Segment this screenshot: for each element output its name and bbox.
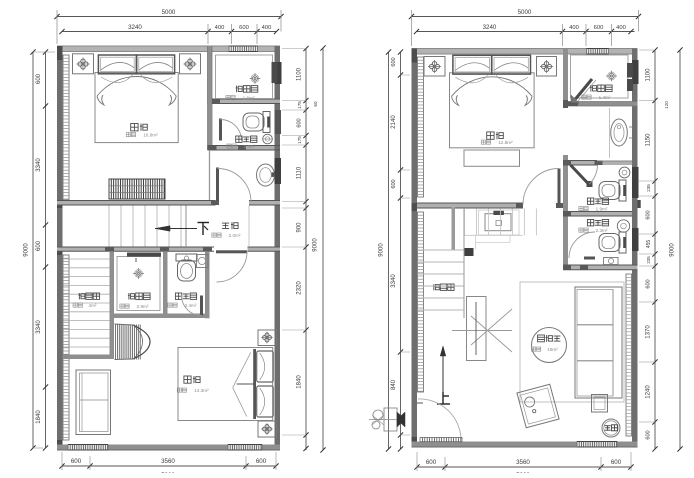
svg-text:1100: 1100	[297, 67, 303, 81]
svg-text:9000: 9000	[379, 243, 385, 257]
svg-text:1100: 1100	[646, 68, 652, 82]
svg-text:400: 400	[215, 25, 225, 31]
svg-text:4m²: 4m²	[89, 303, 97, 308]
svg-text:2.9m²: 2.9m²	[137, 304, 149, 309]
svg-text:3340: 3340	[36, 158, 42, 172]
svg-text:600: 600	[391, 179, 397, 188]
svg-text:2.0m²: 2.0m²	[229, 233, 241, 238]
svg-text:600: 600	[646, 430, 652, 439]
svg-text:1110: 1110	[297, 166, 303, 179]
svg-text:235: 235	[646, 184, 651, 192]
svg-text:1370: 1370	[646, 325, 652, 339]
svg-text:600: 600	[36, 73, 42, 84]
svg-text:600: 600	[391, 57, 397, 66]
svg-text:175: 175	[297, 101, 302, 109]
svg-text:1.6m²: 1.6m²	[243, 96, 255, 101]
svg-text:3340: 3340	[391, 274, 397, 288]
svg-text:840: 840	[391, 379, 397, 390]
svg-text:2.3m²: 2.3m²	[596, 228, 608, 233]
svg-text:1.9m²: 1.9m²	[596, 207, 608, 212]
svg-text:1.4m²: 1.4m²	[599, 95, 611, 100]
svg-text:455: 455	[646, 240, 652, 249]
svg-text:600: 600	[36, 240, 42, 251]
svg-text:1240: 1240	[646, 385, 652, 399]
svg-text:235: 235	[646, 256, 651, 264]
svg-text:600: 600	[71, 458, 82, 465]
svg-text:3240: 3240	[128, 24, 142, 31]
svg-text:2320: 2320	[297, 281, 303, 295]
svg-text:175: 175	[297, 136, 302, 144]
svg-text:2.4m²: 2.4m²	[185, 303, 197, 308]
svg-text:2140: 2140	[391, 115, 397, 129]
svg-text:3560: 3560	[516, 459, 530, 466]
svg-text:600: 600	[646, 210, 652, 219]
svg-text:1840: 1840	[36, 410, 42, 424]
svg-text:9000: 9000	[313, 238, 319, 252]
svg-text:600: 600	[256, 458, 267, 465]
svg-text:3340: 3340	[36, 320, 42, 334]
svg-text:400: 400	[569, 25, 579, 31]
svg-text:3240: 3240	[483, 24, 497, 31]
svg-text:19m²: 19m²	[547, 347, 558, 352]
svg-text:1840: 1840	[297, 375, 303, 389]
svg-text:9000: 9000	[24, 243, 30, 257]
svg-text:14.3m²: 14.3m²	[194, 388, 209, 393]
svg-text:400: 400	[616, 25, 626, 31]
svg-text:400: 400	[262, 25, 272, 31]
svg-text:600: 600	[611, 459, 622, 466]
svg-text:600: 600	[594, 25, 604, 31]
svg-text:600: 600	[239, 25, 249, 31]
svg-text:1150: 1150	[646, 133, 652, 147]
svg-text:12.8m²: 12.8m²	[498, 140, 513, 145]
svg-text:3560: 3560	[161, 458, 175, 465]
svg-text:600: 600	[646, 279, 652, 288]
svg-text:600: 600	[297, 118, 303, 127]
svg-text:600: 600	[426, 459, 437, 466]
svg-text:5000: 5000	[162, 9, 176, 16]
svg-text:900: 900	[297, 222, 303, 233]
svg-text:5000: 5000	[518, 9, 532, 16]
svg-text:9000: 9000	[670, 243, 676, 257]
svg-text:16.8m²: 16.8m²	[143, 133, 158, 138]
svg-text:120: 120	[664, 101, 669, 109]
svg-text:60: 60	[313, 101, 318, 107]
svg-text:2.5m²: 2.5m²	[244, 144, 256, 149]
